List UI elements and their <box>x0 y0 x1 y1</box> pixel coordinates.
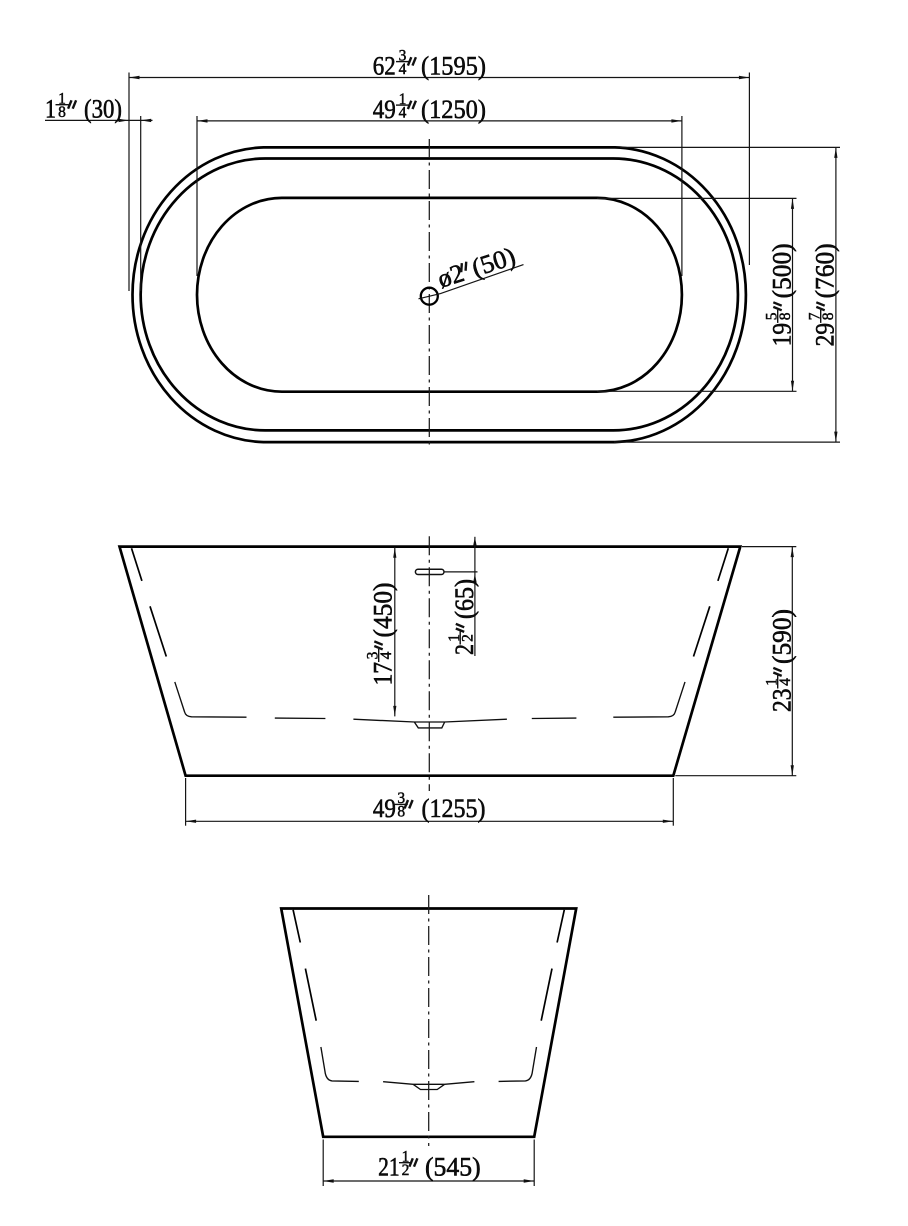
svg-text:49: 49 <box>373 794 396 823</box>
svg-text:8: 8 <box>58 104 66 121</box>
svg-text:62: 62 <box>373 51 396 80</box>
svg-text:8: 8 <box>820 312 837 320</box>
svg-text:(500): (500) <box>768 243 797 298</box>
svg-text:21: 21 <box>378 1153 400 1182</box>
svg-text:4: 4 <box>378 651 395 659</box>
svg-text:(1255): (1255) <box>422 794 486 823</box>
svg-text:8: 8 <box>777 312 794 320</box>
svg-text:(50): (50) <box>468 241 519 282</box>
svg-text:8: 8 <box>397 804 405 821</box>
svg-text:(1595): (1595) <box>421 51 486 80</box>
svg-text:4: 4 <box>777 678 794 686</box>
svg-text:(1250): (1250) <box>421 95 486 124</box>
svg-text:(65): (65) <box>450 579 479 619</box>
svg-text:4: 4 <box>399 61 407 78</box>
svg-text:23: 23 <box>768 689 797 713</box>
svg-text:2: 2 <box>450 644 479 655</box>
svg-text:(545): (545) <box>425 1153 481 1182</box>
svg-text:2: 2 <box>459 634 476 642</box>
svg-text:(590): (590) <box>768 609 797 664</box>
svg-text:19: 19 <box>768 323 797 347</box>
svg-text:17: 17 <box>369 662 398 686</box>
svg-text:4: 4 <box>399 104 407 121</box>
svg-text:29: 29 <box>811 323 840 347</box>
svg-text:(450): (450) <box>369 583 398 638</box>
svg-text:1: 1 <box>45 95 56 124</box>
svg-text:(760): (760) <box>811 243 840 298</box>
svg-text:(30): (30) <box>84 95 122 124</box>
svg-text:49: 49 <box>373 95 396 124</box>
svg-text:2: 2 <box>402 1162 410 1179</box>
